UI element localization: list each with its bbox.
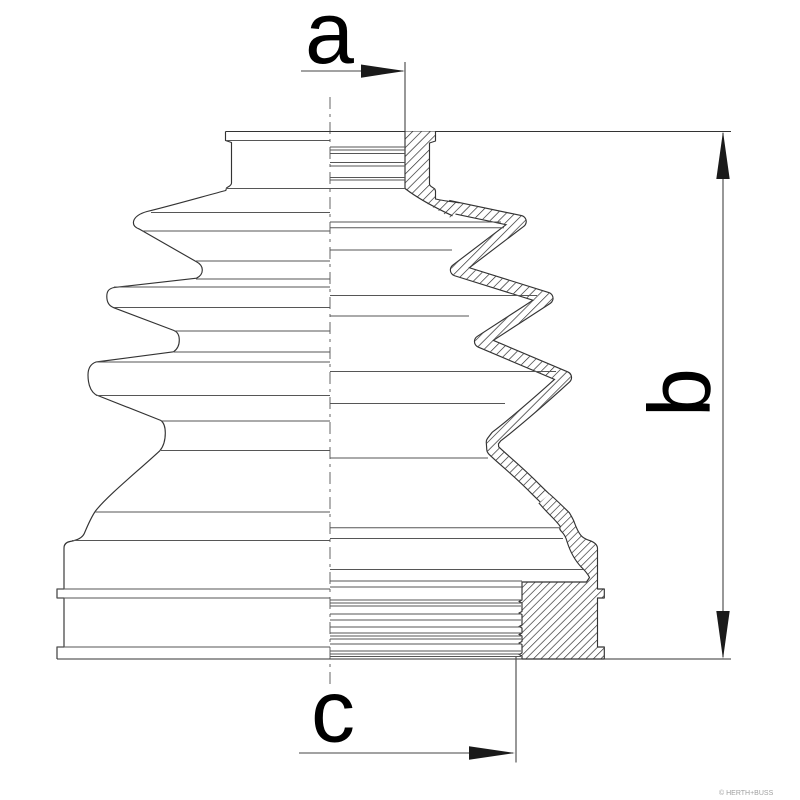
svg-text:b: b (630, 368, 729, 417)
svg-text:© HERTH+BUSS: © HERTH+BUSS (719, 789, 774, 797)
svg-text:c: c (311, 662, 355, 761)
svg-text:a: a (305, 0, 354, 82)
